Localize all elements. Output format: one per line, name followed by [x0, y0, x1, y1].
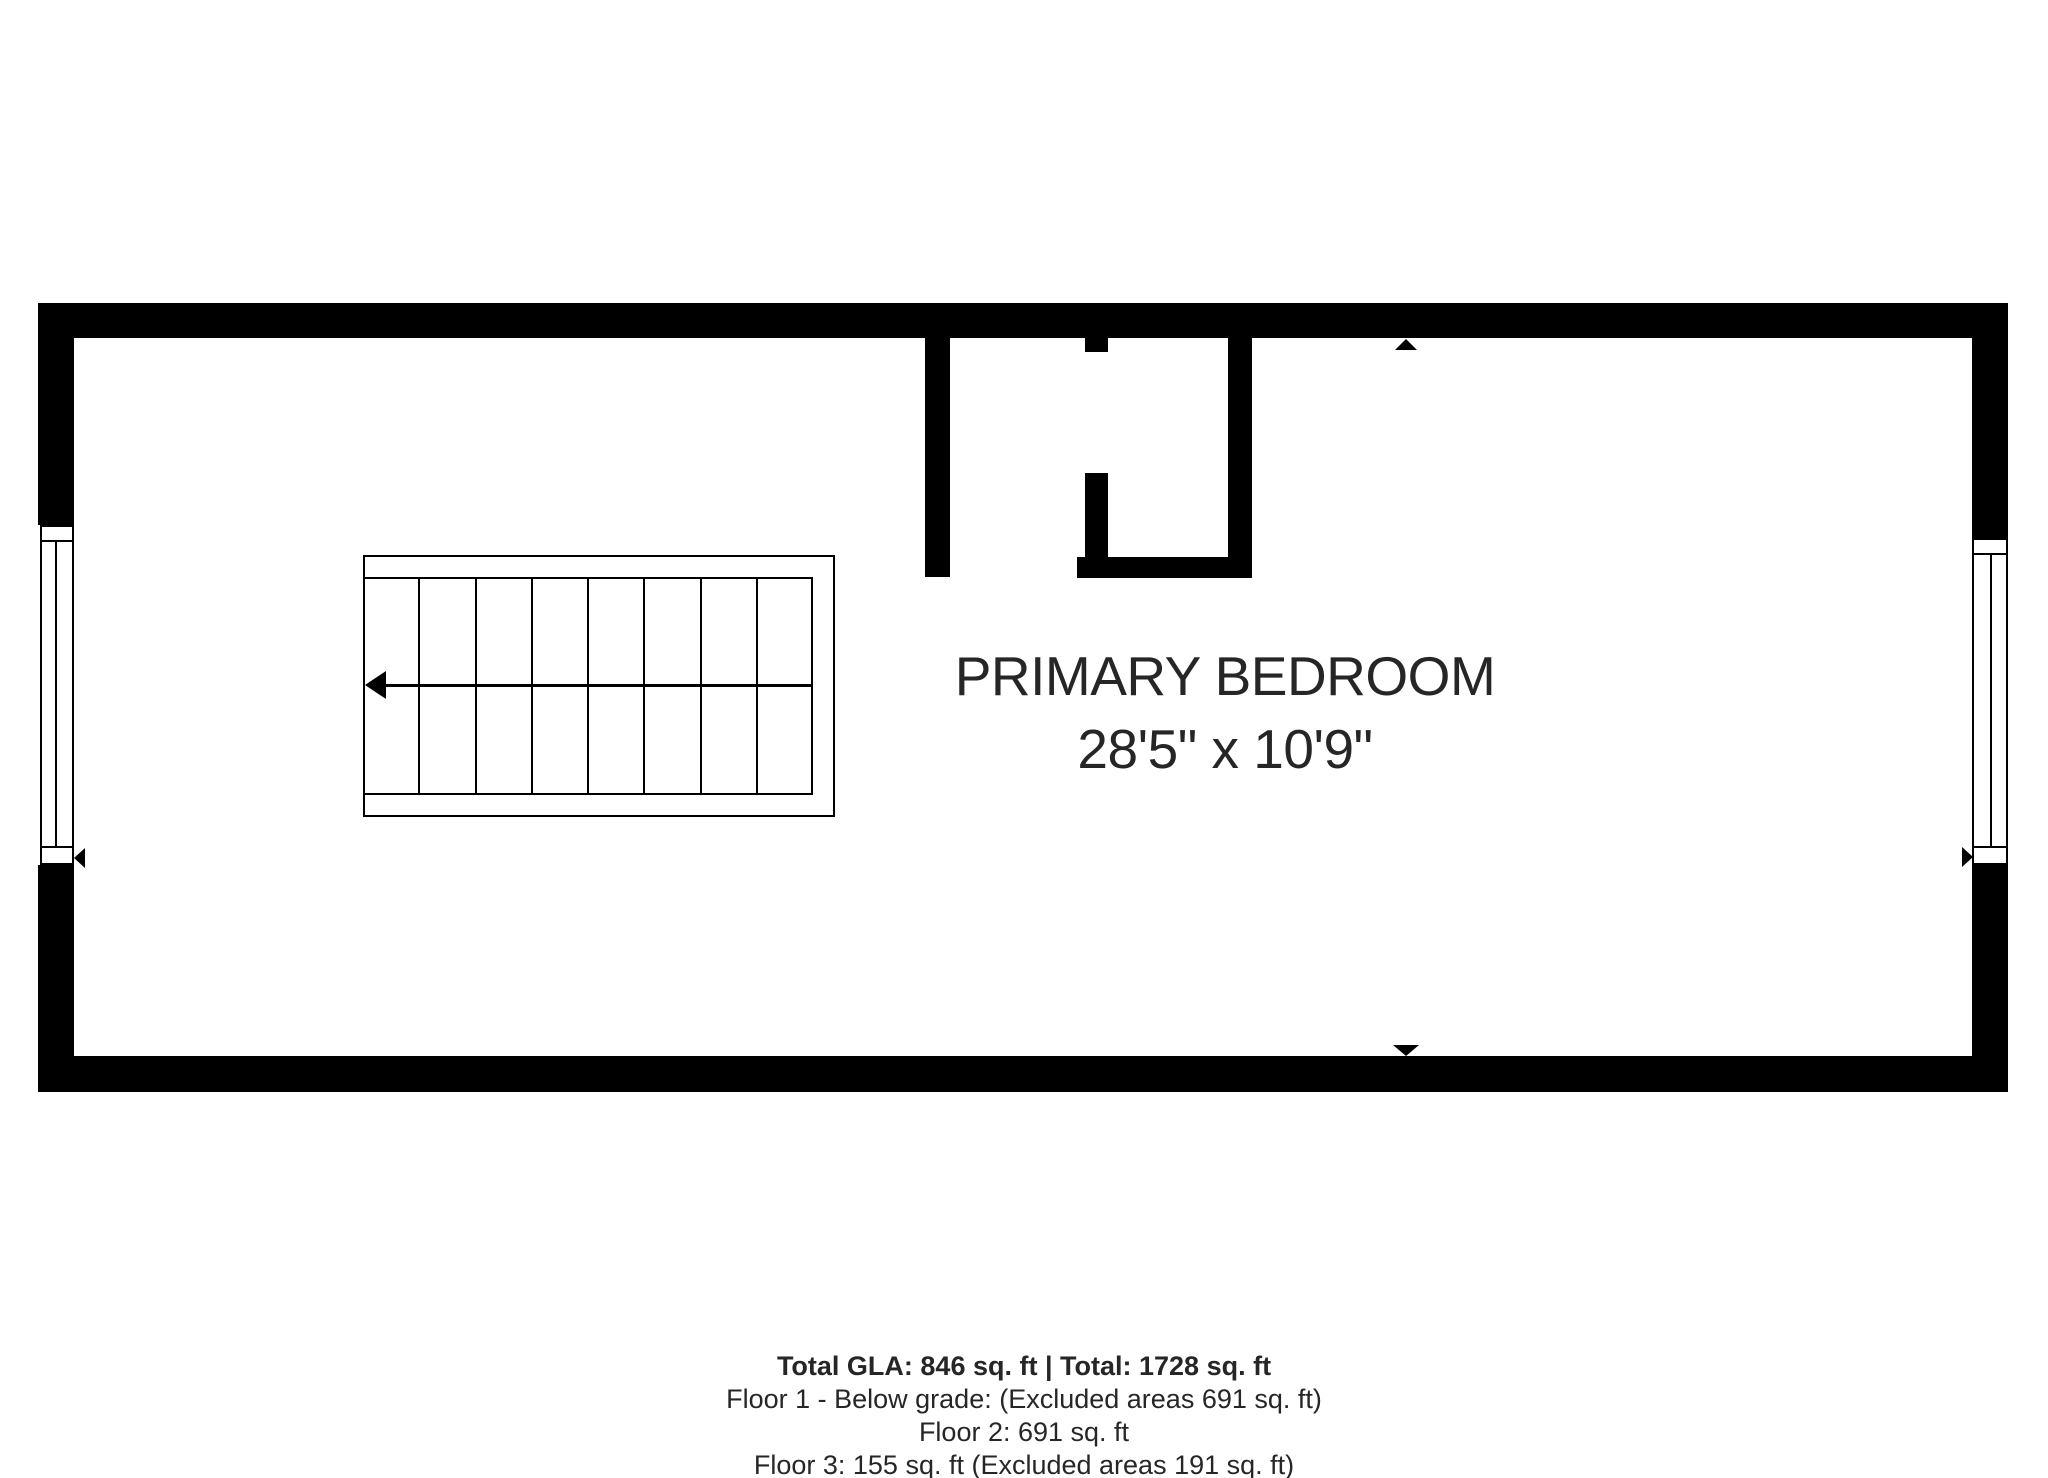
wall-bottom	[38, 1056, 2008, 1092]
wall-left-upper	[38, 303, 74, 525]
wall-top	[38, 303, 2008, 338]
closet-bottom-wall	[1077, 557, 1252, 578]
closet-right-wall	[1228, 338, 1252, 578]
closet-left-wall	[925, 338, 950, 577]
closet-middle-wall-stub	[1085, 338, 1108, 352]
footer-total-line: Total GLA: 846 sq. ft | Total: 1728 sq. …	[0, 1350, 2048, 1383]
wall-right-lower	[1972, 865, 2008, 1092]
room-dimensions: 28'5" x 10'9"	[955, 713, 1496, 786]
window-right-sill-line	[1972, 846, 2008, 848]
up-triangle-marker-icon	[1395, 339, 1417, 350]
wall-left-lower	[38, 865, 74, 1092]
window-left-sill-line	[40, 846, 74, 848]
stair-direction-line	[386, 684, 813, 687]
footer-floor1-line: Floor 1 - Below grade: (Excluded areas 6…	[0, 1383, 2048, 1416]
stair-direction-arrow-icon	[365, 671, 386, 699]
floor-plan: PRIMARY BEDROOM 28'5" x 10'9" Total GLA:…	[0, 0, 2048, 1478]
window-left-head-line	[40, 540, 74, 542]
footer-floor2-line: Floor 2: 691 sq. ft	[0, 1416, 2048, 1449]
wall-right-upper	[1972, 303, 2008, 538]
window-left-frame	[40, 525, 74, 865]
footer-summary: Total GLA: 846 sq. ft | Total: 1728 sq. …	[0, 1350, 2048, 1478]
right-triangle-marker-icon	[1962, 847, 1973, 867]
window-right-mullion	[1990, 555, 1992, 846]
down-triangle-marker-icon	[1393, 1045, 1419, 1056]
room-name: PRIMARY BEDROOM	[955, 640, 1496, 713]
window-left-mullion	[55, 542, 57, 846]
footer-floor3-line: Floor 3: 155 sq. ft (Excluded areas 191 …	[0, 1449, 2048, 1478]
left-triangle-marker-icon	[74, 848, 85, 868]
room-label: PRIMARY BEDROOM 28'5" x 10'9"	[955, 640, 1496, 786]
